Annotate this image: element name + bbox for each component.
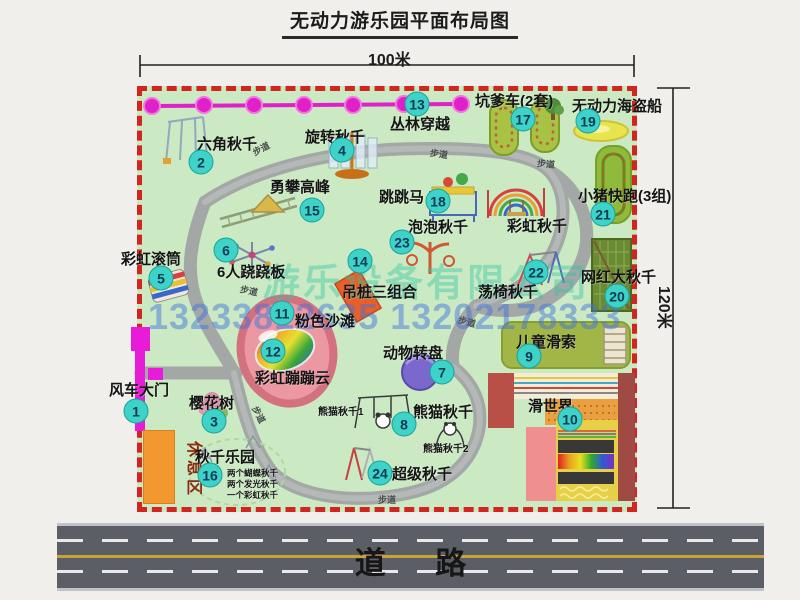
badge-21: 21 bbox=[591, 202, 616, 227]
badge-3: 3 bbox=[202, 409, 227, 434]
badge-17: 17 bbox=[511, 107, 536, 132]
badge-9: 9 bbox=[517, 344, 542, 369]
note-rainbow-swing: 一个彩虹秋千 bbox=[227, 489, 278, 501]
walkway-label-3: 步道 bbox=[536, 156, 555, 171]
road: 道路 bbox=[57, 523, 764, 591]
label-piggy-run: 小猪快跑(3组) bbox=[578, 185, 671, 206]
label-jungle-crossing: 丛林穿越 bbox=[390, 113, 450, 134]
label-panda-swing-1: 熊猫秋千1 bbox=[318, 403, 364, 418]
width-dimension-label: 100米 bbox=[368, 46, 411, 70]
badge-24: 24 bbox=[368, 461, 393, 486]
badge-4: 4 bbox=[330, 138, 355, 163]
label-rainbow-roller: 彩虹滚筒 bbox=[121, 248, 181, 269]
label-pit-cart: 坑爹车(2套) bbox=[475, 90, 553, 111]
badge-6: 6 bbox=[214, 238, 239, 263]
badge-19: 19 bbox=[576, 109, 601, 134]
label-climbing-peak: 勇攀高峰 bbox=[270, 176, 330, 197]
badge-11: 11 bbox=[270, 301, 295, 326]
label-hanging-pile: 吊桩三组合 bbox=[342, 281, 417, 302]
label-bubble-swing: 泡泡秋千 bbox=[408, 216, 468, 237]
label-rainbow-swing: 彩虹秋千 bbox=[507, 215, 567, 236]
badge-1: 1 bbox=[124, 399, 149, 424]
label-rainbow-cloud: 彩虹蹦蹦云 bbox=[255, 367, 330, 388]
label-pink-beach: 粉色沙滩 bbox=[295, 310, 355, 331]
label-jumping-horse: 跳跳马 bbox=[379, 186, 424, 207]
label-panda-swing: 熊猫秋千 bbox=[413, 401, 473, 422]
badge-5: 5 bbox=[149, 266, 174, 291]
walkway-label-7: 步道 bbox=[378, 493, 396, 506]
walkway-label-2: 步道 bbox=[429, 146, 449, 161]
badge-13: 13 bbox=[405, 92, 430, 117]
road-label: 道路 bbox=[57, 538, 764, 583]
badge-16: 16 bbox=[198, 463, 223, 488]
badge-22: 22 bbox=[524, 260, 549, 285]
badge-10: 10 bbox=[558, 407, 583, 432]
height-dimension-label: 120米 bbox=[654, 286, 678, 329]
label-panda-swing-2: 熊猫秋千2 bbox=[423, 440, 469, 455]
badge-7: 7 bbox=[430, 360, 455, 385]
rest-area: 休息区 bbox=[143, 430, 175, 504]
badge-12: 12 bbox=[261, 339, 286, 364]
badge-23: 23 bbox=[390, 230, 415, 255]
label-seesaw: 6人跷跷板 bbox=[217, 261, 285, 282]
map-title-text: 无动力游乐园平面布局图 bbox=[282, 6, 518, 39]
badge-20: 20 bbox=[605, 284, 630, 309]
label-swing-chair: 荡椅秋千 bbox=[478, 281, 538, 302]
label-animal-turntable: 动物转盘 bbox=[383, 342, 443, 363]
badge-14: 14 bbox=[348, 249, 373, 274]
label-super-swing: 超级秋千 bbox=[392, 463, 452, 484]
badge-15: 15 bbox=[300, 198, 325, 223]
park-layout-map: 无动力游乐园平面布局图 休息区 bbox=[0, 0, 800, 600]
badge-8: 8 bbox=[392, 412, 417, 437]
badge-18: 18 bbox=[426, 189, 451, 214]
badge-2: 2 bbox=[189, 150, 214, 175]
map-title: 无动力游乐园平面布局图 bbox=[0, 6, 800, 39]
label-windmill-gate: 风车大门 bbox=[109, 379, 169, 400]
